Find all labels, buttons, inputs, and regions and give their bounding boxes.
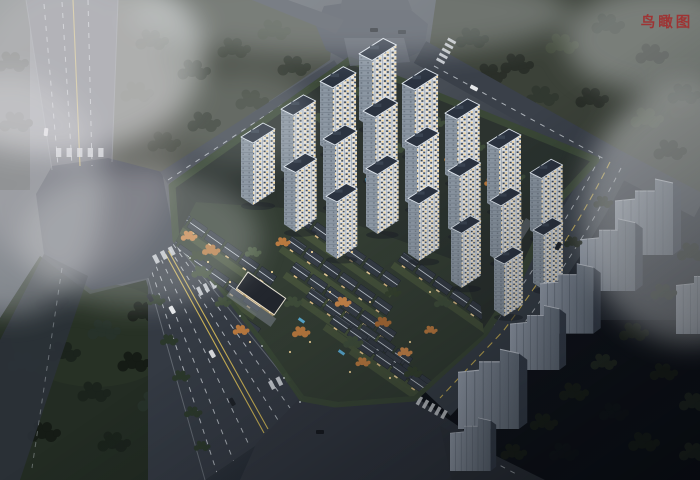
aerial-scene: 鸟瞰图 [0,0,700,480]
vignette [0,0,700,480]
birdseye-label: 鸟瞰图 [641,13,694,31]
birdseye-render: 鸟瞰图 [0,0,700,480]
